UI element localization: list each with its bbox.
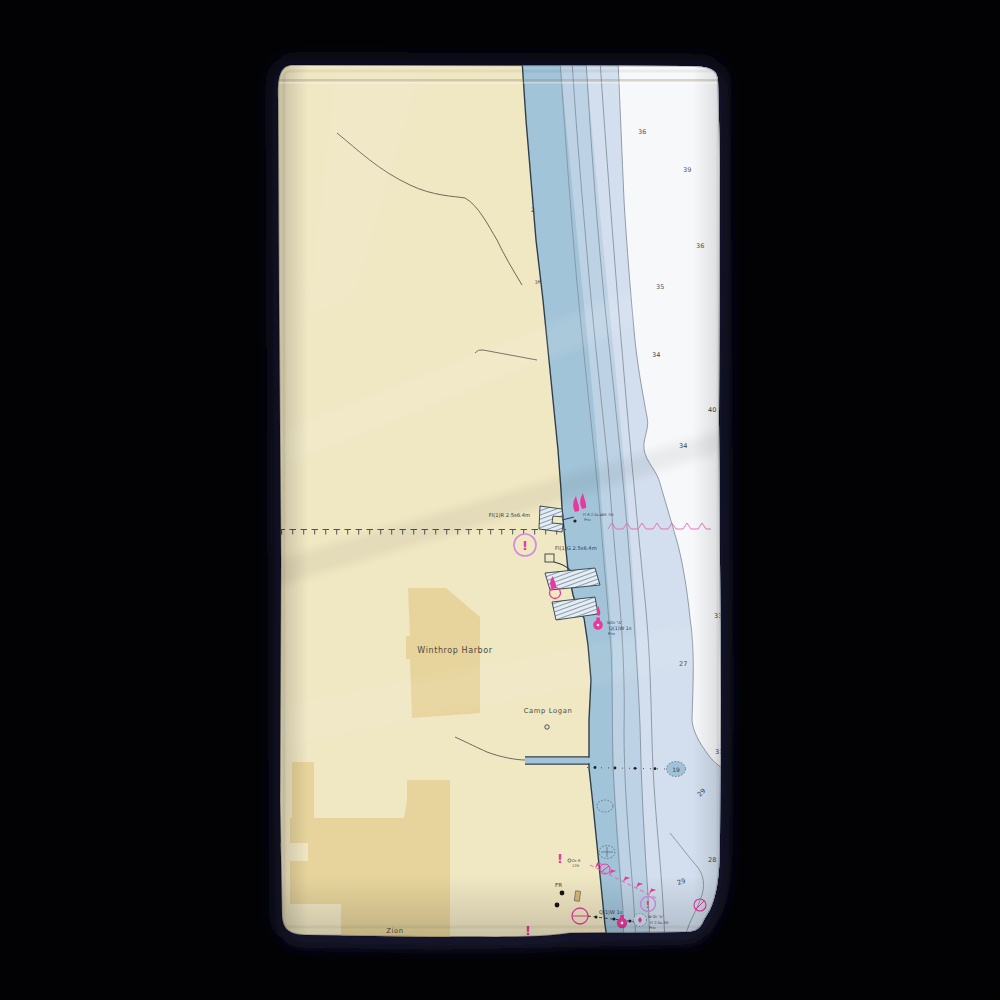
label-north-light-priv: Priv xyxy=(584,518,592,522)
caution-glyph: ! xyxy=(522,538,528,553)
towel-face: ! xyxy=(274,60,726,945)
product-photo-stage: ! xyxy=(0,0,1000,1000)
sounding: 2 xyxy=(531,206,535,213)
towel-hem xyxy=(278,79,722,82)
caution-glyph: ! xyxy=(557,851,563,866)
label-moor-name: WOr "A" xyxy=(607,620,623,625)
label-north-light-detail: Fl R 2.5s 46ft 7M xyxy=(583,513,613,517)
harbor-inlet-channel xyxy=(525,758,588,764)
sounding: 34 xyxy=(652,351,660,359)
label-tank-light-1: Oc R xyxy=(572,859,581,863)
label-winthrop-harbor: Winthrop Harbor xyxy=(417,646,492,655)
towel-mockup: ! xyxy=(0,0,1000,1000)
label-south-light: Fl(1)G 2.5s6.4m xyxy=(555,545,597,551)
label-tank-light-2: 17ft xyxy=(572,864,580,868)
sounding: 19 xyxy=(672,766,680,773)
label-moor-priv: Priv xyxy=(608,631,616,636)
label-camp-logan: Camp Logan xyxy=(524,707,573,715)
sounding: 36 xyxy=(534,279,541,285)
